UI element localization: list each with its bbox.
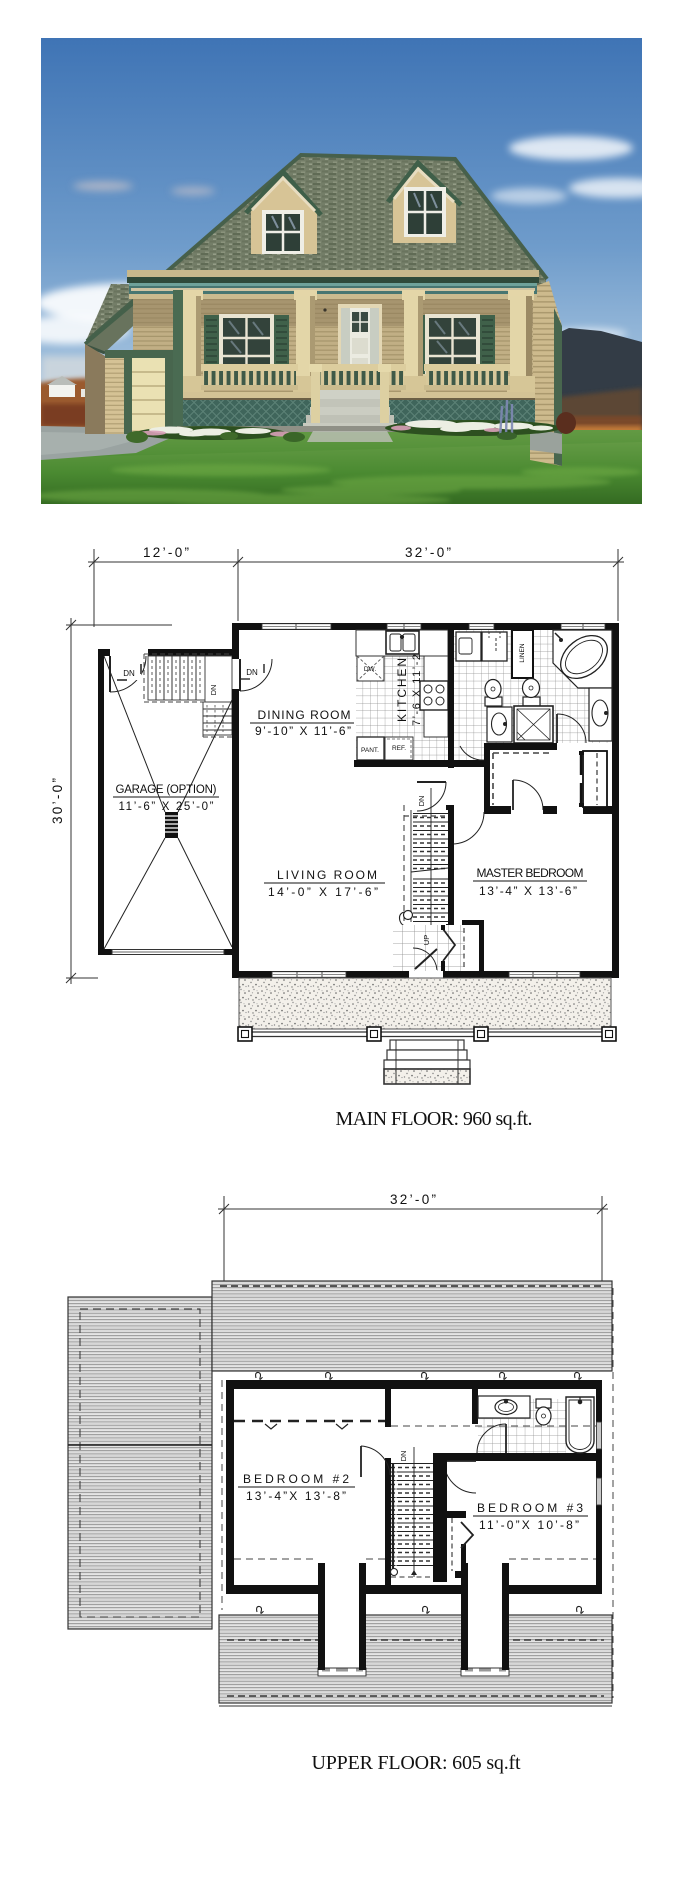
svg-text:9’-10” X 11’-6”: 9’-10” X 11’-6” [255,724,351,738]
svg-text:13’-4” X 13’-6”: 13’-4” X 13’-6” [479,884,577,898]
svg-text:DN: DN [209,685,218,696]
svg-text:32’-0”: 32’-0” [390,1192,436,1207]
svg-text:DN: DN [417,796,426,807]
svg-text:DINING ROOM: DINING ROOM [258,708,351,722]
svg-text:12’-0”: 12’-0” [143,545,189,560]
svg-text:13’-4”X 13’-8”: 13’-4”X 13’-8” [246,1489,346,1503]
svg-text:MAIN FLOOR: 960 sq.ft.: MAIN FLOOR: 960 sq.ft. [336,1108,533,1130]
svg-text:11’-6” X 25’-0”: 11’-6” X 25’-0” [119,801,214,813]
svg-text:REF.: REF. [392,745,406,752]
svg-text:7’-6 X 11’-2: 7’-6 X 11’-2 [411,654,423,726]
svg-text:LINEN: LINEN [519,643,526,662]
svg-text:KITCHEN: KITCHEN [395,658,409,722]
svg-text:GARAGE (OPTION): GARAGE (OPTION) [116,784,217,796]
svg-text:LIVING ROOM: LIVING ROOM [277,868,377,882]
svg-text:30’-0”: 30’-0” [50,778,65,824]
svg-text:11’-0”X 10’-8”: 11’-0”X 10’-8” [479,1518,579,1532]
svg-text:DN: DN [246,668,258,677]
svg-text:MASTER BEDROOM: MASTER BEDROOM [477,866,584,880]
svg-text:BEDROOM #2: BEDROOM #2 [243,1472,349,1486]
svg-text:32’-0”: 32’-0” [405,545,451,560]
svg-text:14’-0” X 17’-6”: 14’-0” X 17’-6” [268,885,378,899]
svg-text:UP: UP [422,935,431,945]
svg-text:UPPER FLOOR: 605 sq.ft: UPPER FLOOR: 605 sq.ft [312,1752,521,1774]
svg-text:DW.: DW. [364,666,376,673]
svg-text:BEDROOM #3: BEDROOM #3 [477,1501,583,1515]
svg-text:PANT.: PANT. [361,747,379,754]
svg-text:DN: DN [399,1451,408,1462]
svg-text:DN: DN [123,669,135,678]
